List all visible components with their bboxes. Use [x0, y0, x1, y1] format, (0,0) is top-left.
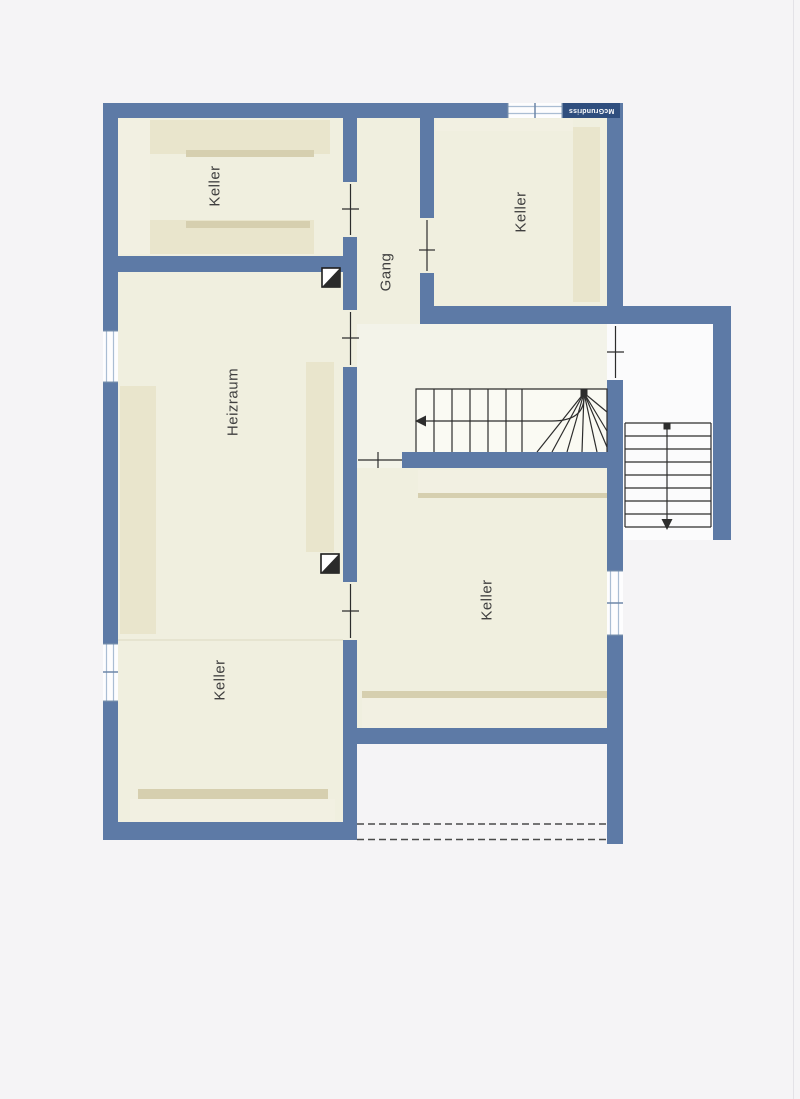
window-symbol-icon — [607, 570, 623, 636]
chest — [120, 386, 156, 634]
window-symbol-icon — [103, 643, 118, 702]
wall-left-middle — [103, 383, 118, 643]
wall-under-stair — [402, 452, 623, 468]
shelf-edge — [186, 221, 310, 228]
shelf — [418, 470, 607, 497]
room-label-gang: Gang — [378, 253, 395, 292]
wall-top — [103, 103, 507, 118]
shelf-edge — [362, 691, 607, 698]
shelf — [118, 120, 150, 254]
room-label-keller-bottom-left: Keller — [212, 659, 229, 700]
exterior-stair-landing-floor — [623, 324, 713, 540]
chimney-icon — [321, 554, 339, 573]
floor-plan-drawing — [0, 0, 800, 1099]
wall-gang-right-upper — [420, 118, 434, 218]
room-gang-floor — [357, 118, 420, 324]
shelf-edge — [138, 789, 328, 799]
floor-plan: Keller Keller Gang Heizraum Keller Kelle… — [0, 0, 800, 1099]
chest — [306, 362, 334, 552]
window-symbol-icon — [103, 330, 118, 383]
walk-line-start-dot — [581, 390, 588, 397]
wall-left-upper — [103, 103, 118, 330]
room-label-keller-main: Keller — [479, 579, 496, 620]
shelf-edge — [418, 493, 607, 498]
room-label-keller-top-left: Keller — [207, 165, 224, 206]
wall-central-b — [343, 237, 357, 310]
wall-central-c — [343, 367, 357, 582]
shelf — [573, 127, 600, 302]
wall-right-middle — [607, 380, 623, 570]
room-label-heizraum: Heizraum — [225, 368, 242, 436]
window-symbol-icon — [507, 103, 563, 118]
wall-keller-tl-south — [103, 256, 357, 272]
watermark-badge: McGrundriss — [563, 103, 620, 118]
shelf — [130, 799, 335, 822]
wall-right-upper — [607, 103, 623, 324]
room-label-keller-top-right: Keller — [513, 191, 530, 232]
dashed-outline — [357, 824, 607, 840]
wall-bottom-left — [103, 822, 357, 840]
scanned-page: { "watermark": { "text": "McGrundriss" }… — [0, 0, 800, 1099]
shelf — [150, 120, 330, 154]
shelf — [362, 698, 607, 728]
chimney-icon — [322, 268, 340, 287]
walk-line-start-dot — [664, 423, 671, 430]
wall-keller-tr-south — [420, 306, 731, 324]
wall-keller-main-south — [357, 728, 623, 744]
wall-gang-right-lower — [420, 273, 434, 306]
watermark-text: McGrundriss — [569, 107, 614, 114]
wall-exterior-stair-right — [713, 306, 731, 540]
wall-left-lower — [103, 702, 118, 840]
wall-central-a — [343, 118, 357, 182]
shelf-edge — [186, 150, 314, 157]
scan-edge-artifact — [793, 0, 794, 1099]
wall-central-d — [343, 640, 357, 840]
shelf — [436, 119, 573, 131]
